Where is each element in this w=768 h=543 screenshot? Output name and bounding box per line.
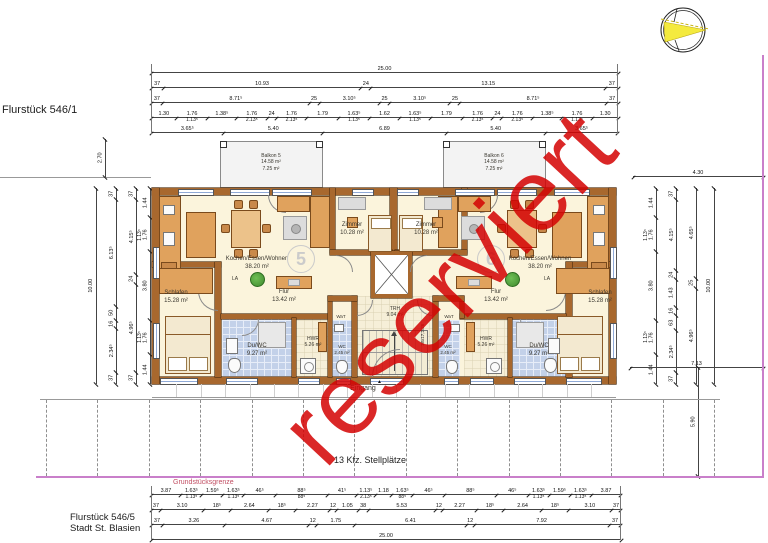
chair xyxy=(234,200,243,209)
dim-chain-right-1: 1.441.761.13⁵3.801.761.13⁵1.44 xyxy=(648,188,657,384)
pillow xyxy=(189,357,208,371)
wall-schlafen5-right xyxy=(215,262,221,377)
floor-plan-drawing: Flurstück 546/1 Flurstück 546/5 Stadt St… xyxy=(0,0,768,543)
sofa-5-horizontal xyxy=(277,196,310,212)
bed-line xyxy=(557,334,603,335)
paving-joint xyxy=(201,384,202,397)
dim-chain-right-4: 10.00 xyxy=(706,188,715,384)
balcony-post xyxy=(316,141,323,148)
toilet-6 xyxy=(544,358,557,373)
dim-chain-bottom-total: 25.00 xyxy=(151,531,621,540)
kitchen-stove-6 xyxy=(593,232,605,246)
parking-divider xyxy=(97,400,98,476)
extension-line xyxy=(151,486,152,540)
balcony-5-label: Balkon 514.58 m²7.25 m² xyxy=(241,153,301,172)
pillow xyxy=(371,218,391,229)
label-schlafen-6: Schlafen15.28 m² xyxy=(578,290,622,305)
label-schlafen-5: Schlafen15.28 m² xyxy=(154,290,198,305)
paving-joint xyxy=(518,384,519,397)
label-duwc-6: Du/WC9.27 m² xyxy=(519,343,559,358)
parking-divider xyxy=(509,400,510,476)
paving-joint xyxy=(567,384,568,397)
pillow xyxy=(168,357,187,371)
north-arrow-icon xyxy=(652,2,718,58)
pillow xyxy=(581,357,600,371)
parcel-label-bottom-line1: Flurstück 546/5 xyxy=(70,512,135,523)
dim-chain-right-2: 374.15⁵241.4316632.34⁵37 xyxy=(668,188,677,384)
label-flur-5: Flur13.42 m² xyxy=(264,289,304,304)
balcony-post xyxy=(220,141,227,148)
dim-chain-left-4: 1.441.761.13⁵3.801.761.13⁵1.44 xyxy=(142,188,151,384)
wall-niche5-top xyxy=(328,296,357,301)
stove-5 xyxy=(291,224,301,234)
plant-icon xyxy=(250,272,265,287)
label-la-5: LA xyxy=(228,276,242,282)
desk-5 xyxy=(338,197,366,210)
dim-chain-bottom-1: 3.871.63⁵1.13⁵1.59⁵1.63⁵1.13⁵46⁵88⁵88⁵41… xyxy=(151,486,621,495)
kitchen-island-5 xyxy=(186,212,216,258)
parking-divider xyxy=(457,400,458,476)
window xyxy=(153,323,160,359)
apartment-number-5: 5 xyxy=(287,245,315,273)
sofa-5-vertical xyxy=(310,196,330,248)
parcel-label-top: Flurstück 546/1 xyxy=(2,104,77,116)
toilet-5 xyxy=(228,358,241,373)
kitchen-stove-5 xyxy=(163,232,175,246)
washer-drum xyxy=(490,362,500,372)
label-duwc-5: Du/WC9.27 m² xyxy=(237,343,277,358)
chair xyxy=(262,224,271,233)
label-la-6: LA xyxy=(540,276,554,282)
dim-chain-balcony-depth: 2.70 xyxy=(97,139,106,177)
window xyxy=(352,189,374,196)
window xyxy=(610,323,617,359)
wall-bath5-top xyxy=(221,314,331,319)
parcel-label-bottom-line2: Stadt St. Blasien xyxy=(70,523,140,534)
window xyxy=(610,247,617,279)
tv-5 xyxy=(288,279,300,286)
dining-table-5 xyxy=(231,210,261,248)
parking-divider xyxy=(149,400,150,476)
parcel-label-bottom: Flurstück 546/5 Stadt St. Blasien xyxy=(70,512,140,535)
boundary-label: Grundstücksgrenze xyxy=(173,479,234,486)
parking-divider xyxy=(200,400,201,476)
extension-line xyxy=(151,64,152,134)
kitchen-sink-5 xyxy=(163,205,175,215)
paving-joint xyxy=(445,384,446,397)
dim-chain-left-3: 374.15⁵244.96⁵37 xyxy=(128,188,137,384)
paving-joint xyxy=(469,384,470,397)
parking-divider xyxy=(714,400,715,476)
paving-joint xyxy=(542,384,543,397)
window xyxy=(397,189,419,196)
paving-joint xyxy=(250,384,251,397)
paving-joint xyxy=(225,384,226,397)
dim-chain-top-2: 3710.932413.1537 xyxy=(151,79,618,88)
balcony-post xyxy=(443,141,450,148)
paving-joint xyxy=(591,384,592,397)
extension-line-left xyxy=(0,177,151,178)
dim-chain-bottom-3: 373.264.67121.756.41127.9237 xyxy=(151,516,621,525)
wall-zimmer5 xyxy=(330,188,335,253)
paving-joint xyxy=(176,384,177,397)
parking-divider xyxy=(663,400,664,476)
chair xyxy=(221,224,230,233)
dim-chain-left-2: 376.13⁵50162.34⁵37 xyxy=(108,188,117,384)
window xyxy=(178,189,214,196)
parking-divider xyxy=(560,400,561,476)
extension-line xyxy=(620,486,621,540)
dim-chain-top-total: 25.00 xyxy=(151,64,618,73)
extension-line xyxy=(617,64,618,134)
pillow xyxy=(560,357,579,371)
parking-divider xyxy=(611,400,612,476)
label-zimmer-5: Zimmer10.28 m² xyxy=(332,222,372,237)
bed-line xyxy=(165,334,211,335)
label-living-5: Kochen/Essen/Wohnen38.20 m² xyxy=(222,256,292,271)
parking-divider xyxy=(46,400,47,476)
wall-duwc6-hwr6 xyxy=(508,318,512,377)
window xyxy=(230,189,270,196)
chair xyxy=(249,200,258,209)
paving-joint xyxy=(494,384,495,397)
dim-chain-left-1: 10.00 xyxy=(88,188,97,384)
dim-chain-right-top: 4.30 xyxy=(633,168,763,177)
boundary-line-right xyxy=(762,55,764,477)
dim-chain-bottom-2: 373.1018⁵2.6418⁵2.27121.05385.53122.2718… xyxy=(151,501,621,510)
boundary-line-bottom xyxy=(36,476,764,478)
parking-divider xyxy=(252,400,253,476)
dim-chain-right-3: 4.65⁵254.96⁵ xyxy=(688,188,697,384)
